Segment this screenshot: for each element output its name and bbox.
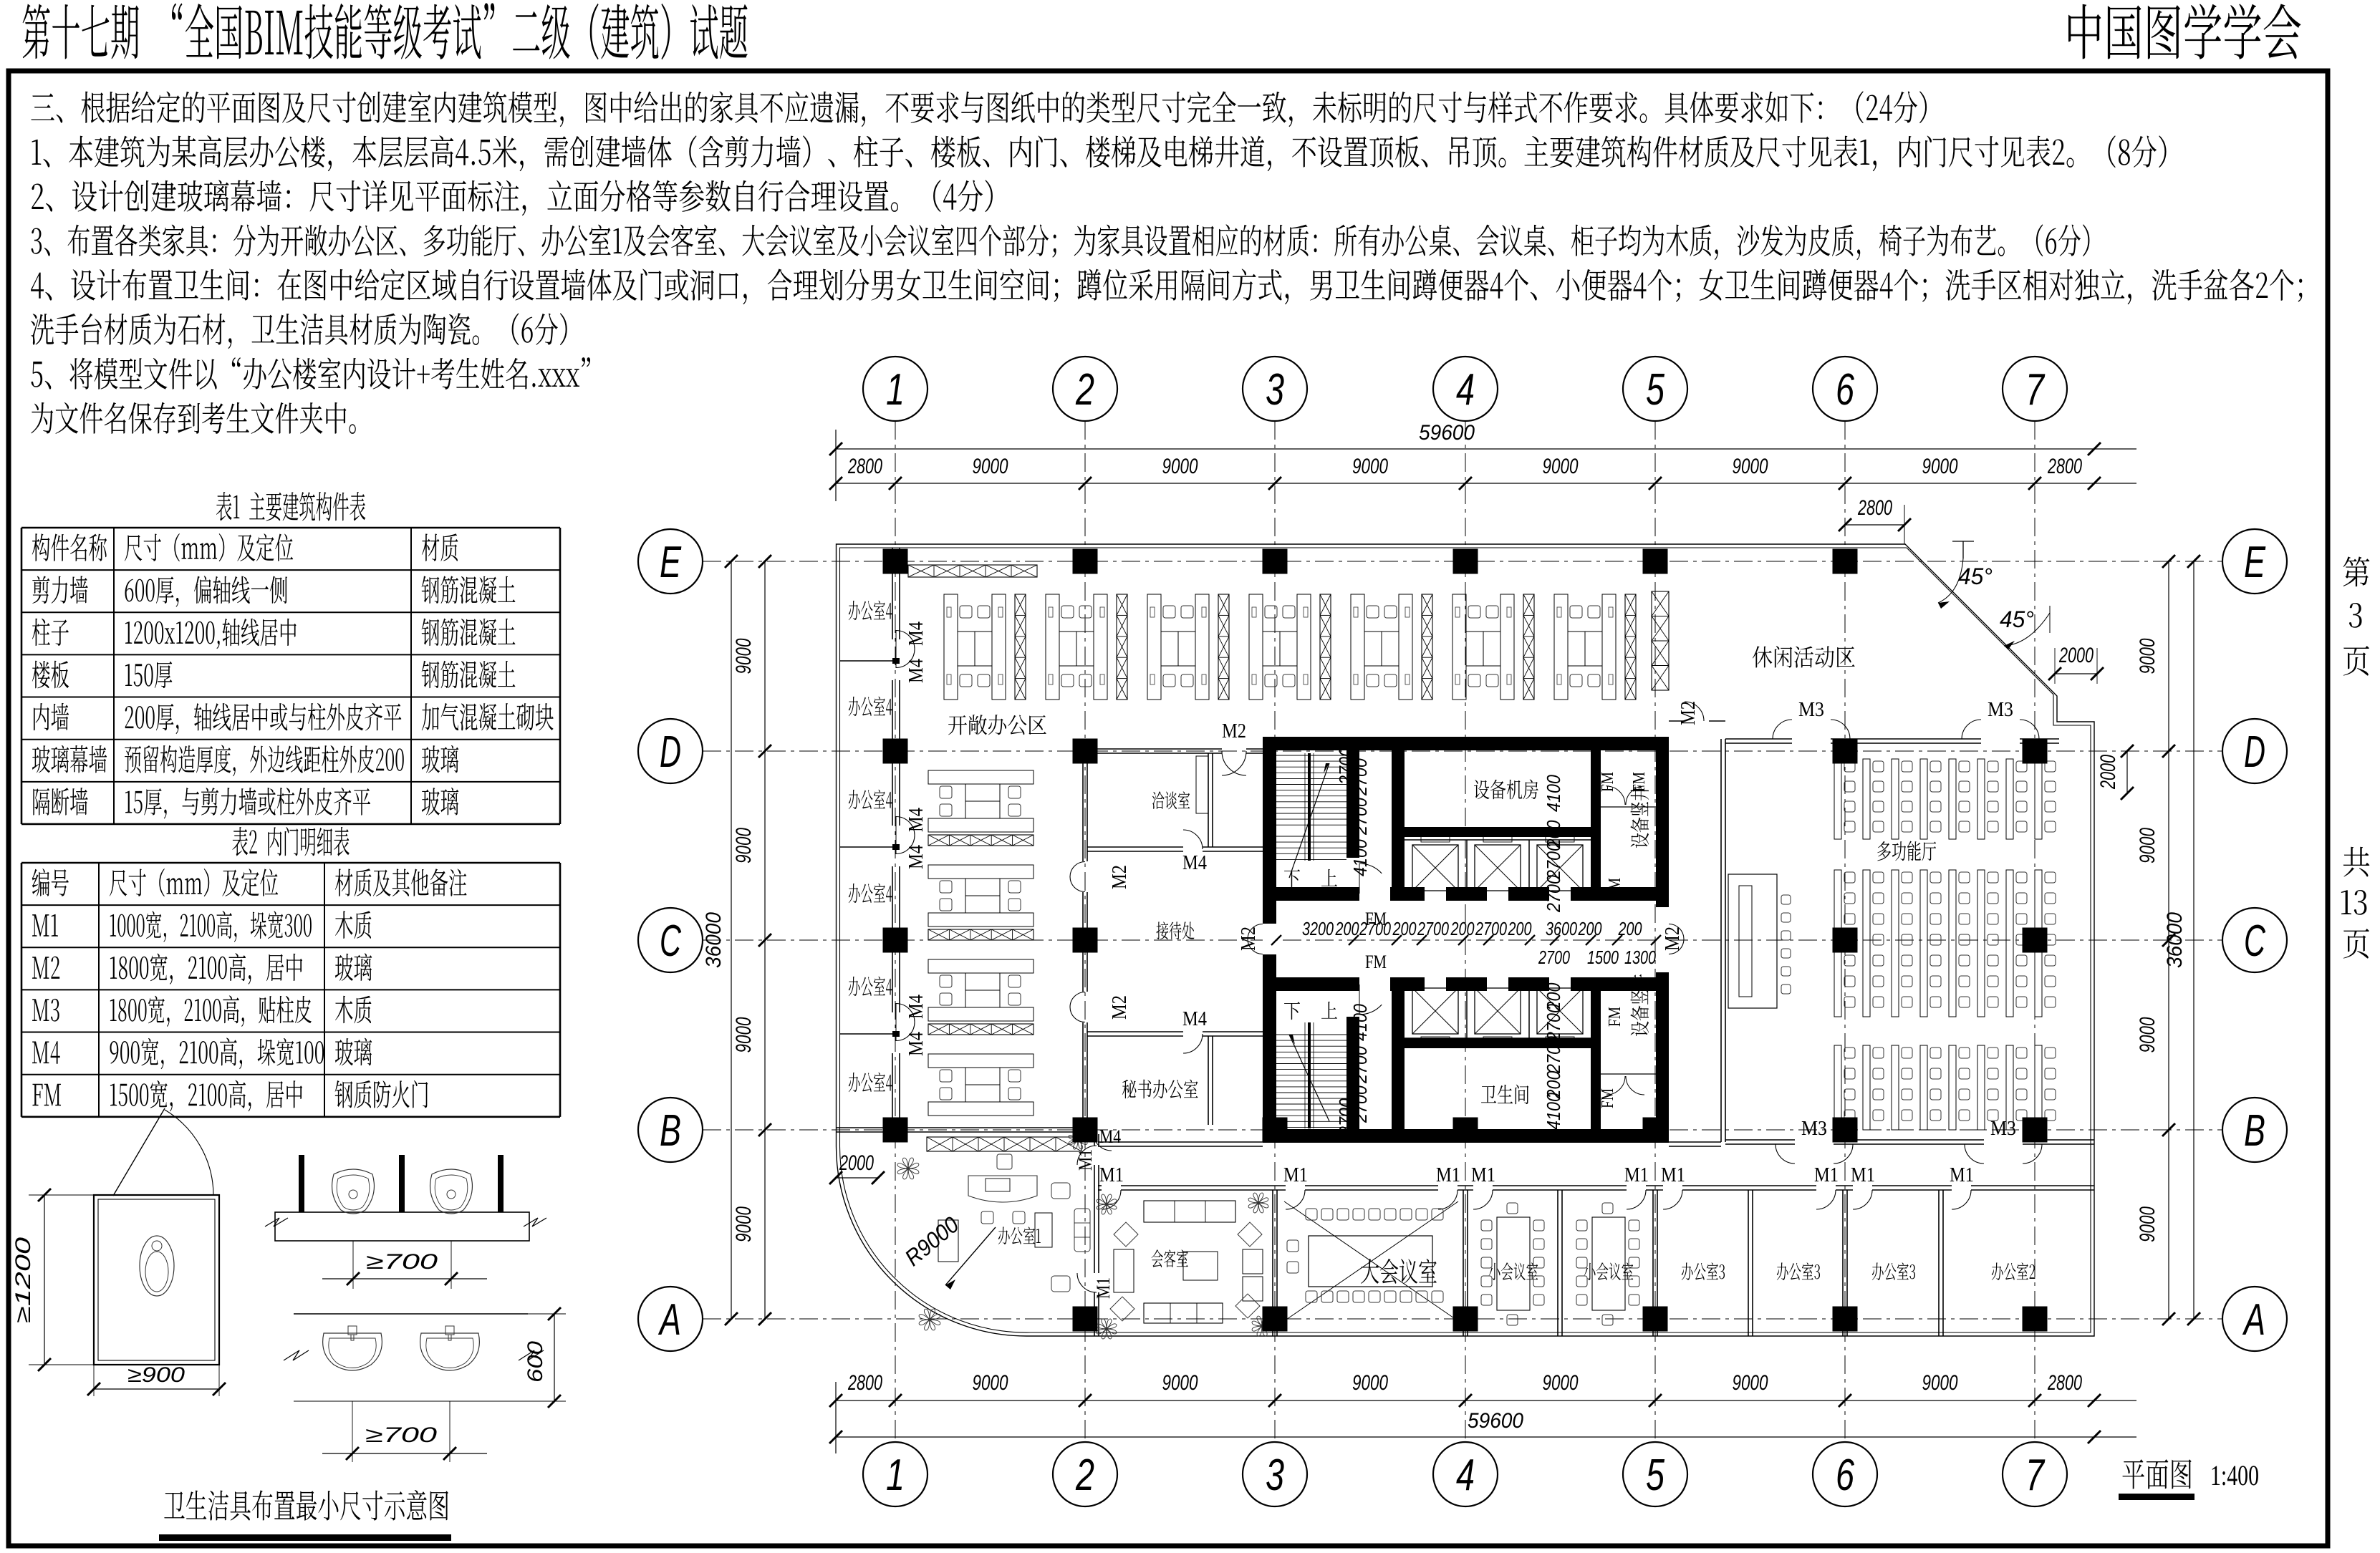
svg-text:4100: 4100 — [1349, 839, 1371, 876]
svg-text:M4: M4 — [905, 995, 928, 1019]
svg-text:2800: 2800 — [1857, 496, 1892, 520]
svg-text:9000: 9000 — [1162, 1371, 1198, 1395]
svg-text:2700: 2700 — [1543, 1004, 1564, 1042]
svg-text:4: 4 — [1456, 1451, 1475, 1500]
svg-text:M3: M3 — [1990, 1118, 2016, 1140]
svg-text:2700: 2700 — [1349, 798, 1371, 836]
svg-text:2700: 2700 — [1543, 842, 1564, 880]
svg-text:2: 2 — [1075, 1451, 1094, 1500]
svg-text:M1: M1 — [1471, 1164, 1495, 1186]
svg-text:M4: M4 — [905, 621, 928, 646]
svg-text:9000: 9000 — [732, 638, 756, 674]
svg-text:A: A — [2242, 1295, 2265, 1345]
svg-text:9000: 9000 — [1733, 455, 1768, 478]
svg-text:M4: M4 — [1182, 852, 1207, 874]
svg-text:M1: M1 — [1851, 1164, 1875, 1186]
svg-text:M3: M3 — [1801, 1118, 1827, 1140]
svg-text:M2: M2 — [1238, 927, 1260, 951]
svg-text:M1: M1 — [1283, 1164, 1308, 1186]
svg-text:200: 200 — [1392, 918, 1417, 939]
svg-text:2700: 2700 — [1543, 1036, 1564, 1074]
svg-text:9000: 9000 — [973, 1371, 1008, 1395]
svg-text:9000: 9000 — [1733, 1371, 1768, 1395]
svg-text:M4: M4 — [1182, 1008, 1207, 1030]
svg-text:M4: M4 — [905, 1032, 928, 1056]
svg-text:45°: 45° — [2000, 606, 2034, 632]
svg-text:2800: 2800 — [847, 455, 882, 478]
svg-text:M4: M4 — [1099, 1126, 1121, 1147]
svg-text:M4: M4 — [905, 659, 928, 683]
svg-text:36000: 36000 — [702, 912, 726, 968]
svg-text:2700: 2700 — [1359, 918, 1391, 939]
svg-text:2800: 2800 — [847, 1371, 882, 1395]
svg-text:9000: 9000 — [2136, 638, 2159, 674]
svg-text:2800: 2800 — [2047, 455, 2082, 478]
svg-text:D: D — [2244, 727, 2265, 777]
svg-text:FM: FM — [1365, 952, 1387, 972]
svg-text:2000: 2000 — [2096, 755, 2120, 790]
svg-text:M4: M4 — [905, 808, 928, 832]
svg-text:9000: 9000 — [732, 1206, 756, 1242]
svg-text:9000: 9000 — [732, 828, 756, 863]
svg-text:M2: M2 — [1109, 995, 1131, 1020]
svg-text:5: 5 — [1646, 1451, 1664, 1500]
svg-text:M2: M2 — [1677, 701, 1700, 725]
svg-text:1: 1 — [886, 365, 905, 415]
svg-text:2700: 2700 — [1543, 875, 1564, 913]
svg-text:M1: M1 — [1814, 1164, 1839, 1186]
svg-text:M1: M1 — [1661, 1164, 1685, 1186]
svg-text:9000: 9000 — [973, 455, 1008, 478]
svg-text:200: 200 — [1450, 918, 1475, 939]
svg-text:45°: 45° — [1958, 563, 1993, 589]
svg-text:9000: 9000 — [732, 1017, 756, 1053]
svg-text:E: E — [2244, 538, 2265, 587]
svg-text:M1: M1 — [1075, 1149, 1096, 1171]
svg-text:B: B — [660, 1106, 681, 1156]
svg-text:C: C — [2244, 916, 2266, 966]
svg-text:≥900: ≥900 — [127, 1363, 185, 1387]
svg-text:M1: M1 — [1093, 1277, 1114, 1299]
svg-text:9000: 9000 — [1922, 1371, 1958, 1395]
svg-text:M1: M1 — [1624, 1164, 1649, 1186]
svg-text:2000: 2000 — [2058, 644, 2094, 667]
svg-text:1: 1 — [886, 1451, 905, 1500]
svg-text:3: 3 — [1266, 1451, 1284, 1500]
svg-text:2700: 2700 — [1538, 947, 1570, 968]
svg-text:200: 200 — [1508, 918, 1532, 939]
svg-text:M3: M3 — [1988, 699, 2013, 721]
svg-text:6: 6 — [1836, 1451, 1854, 1500]
svg-text:M4: M4 — [905, 845, 928, 869]
svg-text:M2: M2 — [1222, 720, 1246, 742]
svg-text:2800: 2800 — [2047, 1371, 2082, 1395]
svg-text:B: B — [2244, 1106, 2265, 1156]
svg-text:M1: M1 — [1950, 1164, 1974, 1186]
svg-text:2000: 2000 — [839, 1151, 874, 1175]
svg-text:3600: 3600 — [1546, 918, 1577, 939]
svg-text:59600: 59600 — [1468, 1409, 1523, 1433]
svg-text:≥700: ≥700 — [365, 1423, 437, 1447]
svg-text:FM: FM — [1599, 772, 1617, 792]
svg-text:4100: 4100 — [1543, 1093, 1564, 1130]
svg-text:3200: 3200 — [1302, 918, 1334, 939]
svg-text:C: C — [660, 916, 682, 966]
svg-text:M1: M1 — [1099, 1164, 1124, 1186]
svg-text:E: E — [660, 538, 681, 587]
svg-text:9000: 9000 — [1352, 455, 1388, 478]
svg-text:6: 6 — [1836, 365, 1854, 415]
svg-text:2700: 2700 — [1335, 1098, 1357, 1136]
svg-text:FM: FM — [1606, 1007, 1624, 1027]
svg-text:200: 200 — [1335, 918, 1359, 939]
svg-text:5: 5 — [1646, 365, 1664, 415]
svg-text:36000: 36000 — [2163, 912, 2187, 968]
svg-text:2700: 2700 — [1349, 1046, 1371, 1084]
svg-text:9000: 9000 — [1543, 1371, 1579, 1395]
svg-text:2700: 2700 — [1335, 748, 1357, 785]
svg-text:FM: FM — [1599, 1088, 1617, 1108]
svg-text:A: A — [657, 1295, 681, 1345]
svg-text:9000: 9000 — [2136, 1017, 2159, 1053]
svg-text:9000: 9000 — [2136, 828, 2159, 863]
svg-text:9000: 9000 — [1352, 1371, 1388, 1395]
svg-text:4: 4 — [1456, 365, 1475, 415]
svg-text:2700: 2700 — [1417, 918, 1449, 939]
svg-text:59600: 59600 — [1419, 421, 1475, 445]
svg-text:1500: 1500 — [1587, 947, 1619, 968]
svg-text:≥1200: ≥1200 — [11, 1237, 35, 1323]
svg-text:9000: 9000 — [1162, 455, 1198, 478]
svg-text:D: D — [660, 727, 681, 777]
svg-text:9000: 9000 — [1543, 455, 1579, 478]
svg-text:FM: FM — [1630, 772, 1649, 792]
svg-text:1:400: 1:400 — [2210, 1459, 2259, 1491]
svg-text:4100: 4100 — [1349, 1004, 1371, 1041]
svg-text:FM: FM — [1606, 878, 1624, 898]
svg-text:7: 7 — [2025, 1451, 2046, 1500]
svg-text:1300: 1300 — [1624, 947, 1656, 968]
svg-text:M1: M1 — [1436, 1164, 1460, 1186]
svg-text:600: 600 — [524, 1341, 547, 1383]
svg-text:200: 200 — [1578, 918, 1602, 939]
svg-text:9000: 9000 — [1922, 455, 1958, 478]
svg-text:3: 3 — [1266, 365, 1284, 415]
svg-text:4100: 4100 — [1543, 775, 1564, 812]
svg-text:M2: M2 — [1662, 927, 1684, 951]
svg-text:9000: 9000 — [2136, 1206, 2159, 1242]
svg-text:7: 7 — [2025, 365, 2046, 415]
svg-text:M2: M2 — [1109, 865, 1131, 889]
svg-text:≥700: ≥700 — [366, 1250, 438, 1274]
svg-text:M3: M3 — [1798, 699, 1824, 721]
svg-text:2: 2 — [1075, 365, 1094, 415]
